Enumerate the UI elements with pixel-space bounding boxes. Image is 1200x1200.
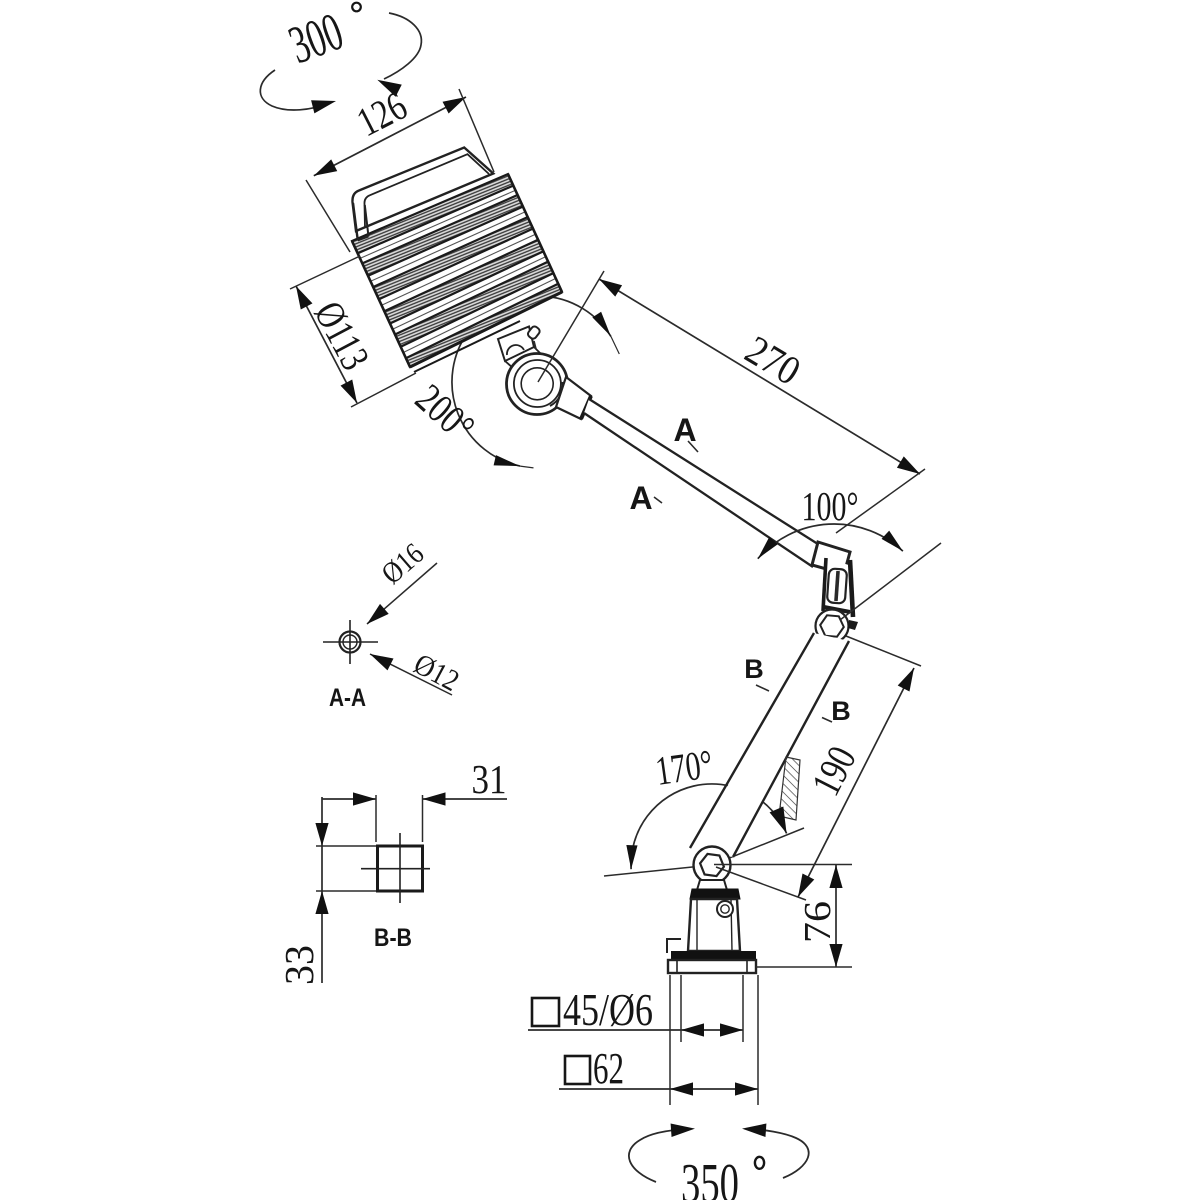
svg-text:A-A: A-A — [329, 684, 366, 712]
svg-text:45/Ø6: 45/Ø6 — [563, 984, 653, 1035]
svg-text:350: 350 — [681, 1153, 739, 1200]
svg-text:170°: 170° — [653, 740, 716, 793]
svg-text:33: 33 — [276, 945, 322, 985]
svg-text:B-B: B-B — [374, 924, 412, 952]
svg-text:A: A — [673, 412, 696, 448]
svg-text:B: B — [831, 696, 851, 726]
svg-text:31: 31 — [472, 756, 507, 802]
svg-text:62: 62 — [593, 1044, 624, 1093]
svg-text:B: B — [744, 654, 764, 684]
svg-text:100°: 100° — [802, 483, 859, 529]
svg-text:A: A — [629, 480, 652, 516]
svg-text:76: 76 — [797, 901, 839, 943]
